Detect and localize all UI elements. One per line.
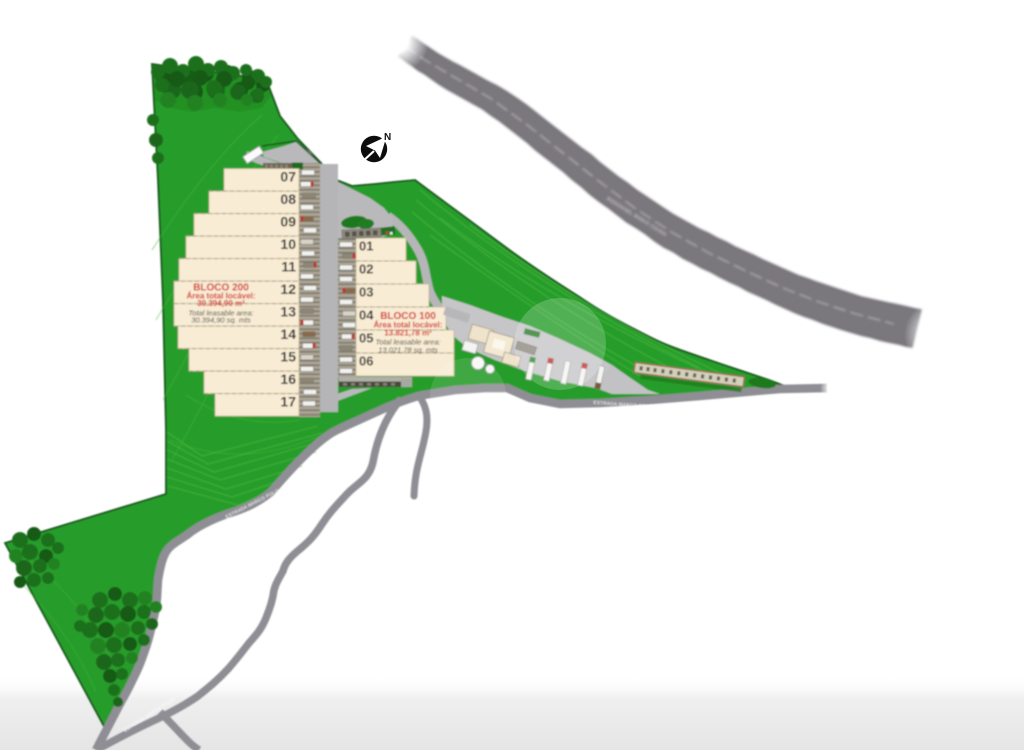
svg-text:06: 06	[359, 354, 373, 369]
svg-text:03: 03	[359, 285, 373, 300]
svg-text:02: 02	[359, 262, 373, 277]
svg-text:13: 13	[280, 304, 296, 320]
svg-text:07: 07	[280, 169, 296, 185]
svg-text:08: 08	[280, 191, 296, 207]
svg-text:13.021,78 sq. mts: 13.021,78 sq. mts	[378, 346, 438, 355]
svg-text:11: 11	[281, 259, 296, 275]
svg-text:10: 10	[280, 236, 296, 252]
svg-text:01: 01	[359, 239, 373, 254]
svg-text:13.821,78 m²: 13.821,78 m²	[384, 329, 432, 338]
svg-text:04: 04	[359, 308, 374, 323]
svg-text:30.394,90 sq. mts: 30.394,90 sq. mts	[191, 316, 251, 325]
svg-text:12: 12	[280, 281, 296, 297]
svg-text:09: 09	[280, 214, 296, 230]
svg-text:17: 17	[280, 394, 296, 410]
svg-text:15: 15	[280, 349, 296, 365]
svg-text:14: 14	[280, 326, 296, 342]
svg-text:05: 05	[359, 331, 373, 346]
svg-text:N: N	[384, 132, 391, 143]
svg-text:16: 16	[280, 371, 296, 387]
svg-text:30.394,90 m²: 30.394,90 m²	[197, 299, 245, 308]
